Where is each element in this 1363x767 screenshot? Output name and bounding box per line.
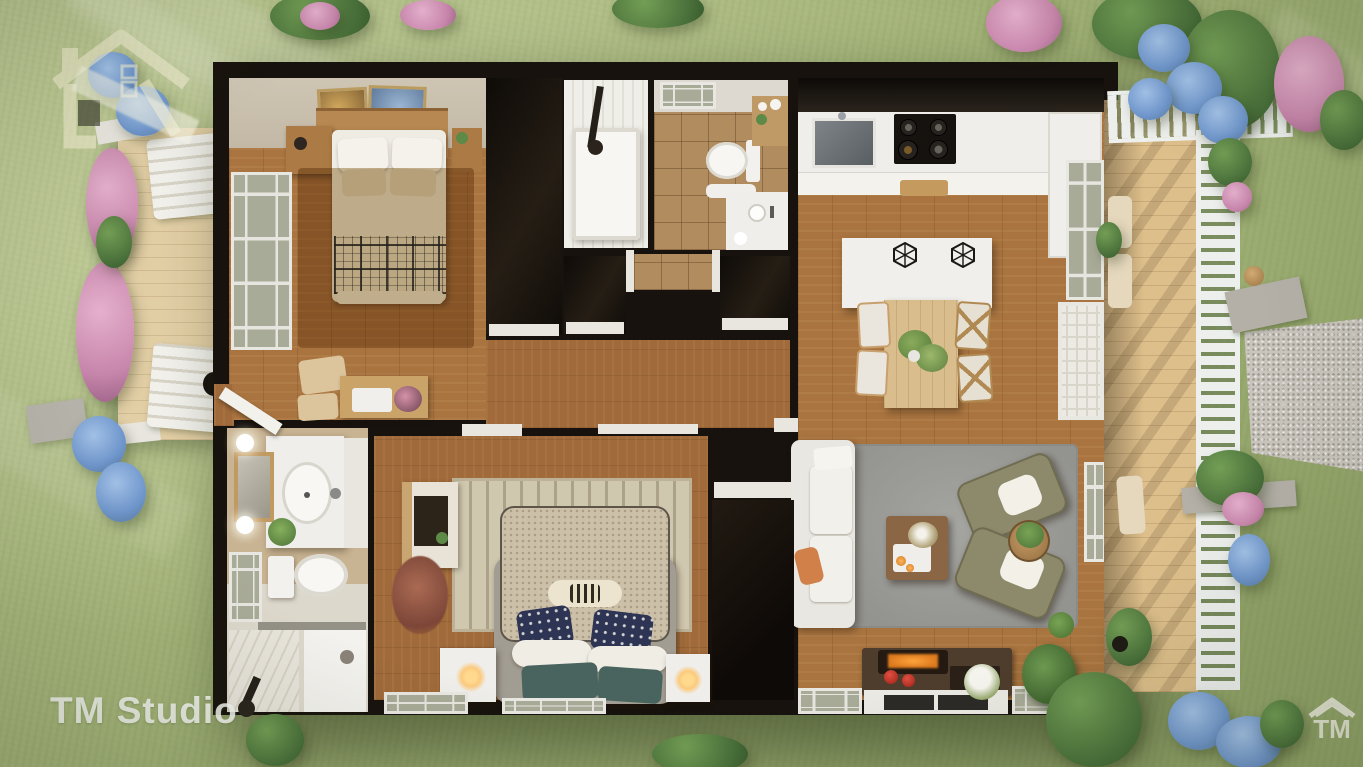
corner-plant	[1048, 612, 1074, 638]
wardrobe-closet	[486, 78, 562, 334]
vestibule-floor	[634, 254, 712, 290]
bedroom-rug	[298, 168, 474, 348]
wardrobe-trim	[714, 482, 792, 498]
bed-pillow	[337, 137, 389, 173]
dried-flowers	[392, 556, 448, 634]
tm-house-badge-icon: TM	[1306, 694, 1358, 752]
jar	[770, 99, 781, 110]
dining-chair	[857, 301, 891, 349]
garden-bush	[246, 714, 304, 766]
nightstand	[286, 126, 332, 174]
white-bouquet	[964, 664, 1000, 700]
bolster-stripes	[570, 584, 600, 603]
table-flowers	[908, 522, 938, 548]
sofa-cushion	[810, 466, 852, 534]
candle	[896, 556, 906, 566]
blue-hydrangea	[1228, 534, 1270, 586]
entry-tray	[352, 388, 392, 412]
bathtub	[572, 128, 640, 240]
closet-trim	[489, 324, 559, 336]
bedside-lamp	[456, 662, 486, 692]
bedside-lamp	[674, 666, 702, 694]
candle	[906, 564, 914, 572]
burner	[930, 119, 947, 136]
kitchen-sink	[812, 118, 876, 168]
garden-bush	[1208, 138, 1252, 186]
deck-railing-right	[1196, 130, 1240, 690]
garden-bush	[612, 0, 704, 28]
door-frame	[598, 424, 698, 434]
ensuite-cabinet	[344, 438, 368, 548]
blue-hydrangea	[1198, 96, 1248, 144]
sink-drain	[304, 492, 310, 498]
vanity-light	[236, 434, 254, 452]
side-table-plant	[1016, 522, 1044, 548]
gravel-path	[1238, 310, 1363, 480]
pendant-lamp-icon	[892, 242, 918, 268]
living-window	[1084, 462, 1106, 562]
toilet-tank	[746, 140, 760, 182]
deck-house-shadow	[1104, 100, 1144, 692]
burner	[929, 140, 948, 159]
vase	[908, 350, 920, 362]
garden-bush	[1260, 700, 1304, 748]
door-frame	[774, 418, 800, 432]
pendant-lamp-icon	[950, 242, 976, 268]
decor-red	[902, 674, 915, 687]
vanity-faucet	[770, 206, 774, 218]
ensuite-plant	[268, 518, 296, 546]
throw-blanket	[813, 445, 853, 470]
flower-vase	[394, 386, 422, 412]
table-lamp	[294, 137, 307, 150]
garden-bush	[1046, 672, 1142, 767]
sink-faucet	[330, 488, 341, 499]
burner	[898, 140, 918, 160]
shower-drain	[340, 650, 354, 664]
plant-small	[456, 132, 468, 144]
hallway-floor	[486, 340, 790, 428]
pink-flowers	[400, 0, 456, 30]
pink-flowers	[1222, 182, 1252, 212]
bed-pillow	[391, 137, 442, 172]
badge-letters: TM	[1313, 714, 1351, 744]
dining-chair-crossback	[954, 301, 991, 351]
fireplace-flame	[888, 654, 938, 668]
teal-pillow	[597, 666, 663, 704]
ensuite-window	[229, 552, 262, 622]
decor-red	[884, 670, 898, 684]
pink-flowers	[76, 262, 134, 402]
jar	[758, 102, 767, 111]
shower-glass	[258, 622, 366, 630]
door-frame	[626, 250, 634, 292]
deck-cushion	[1116, 475, 1146, 535]
master-wardrobe	[712, 500, 794, 700]
bath-window	[660, 82, 716, 109]
entry-bench	[297, 393, 339, 422]
pink-flowers	[300, 2, 340, 30]
upper-cabinets	[798, 78, 1104, 112]
sink-faucet	[838, 112, 846, 120]
dining-chair-crossback	[956, 353, 993, 403]
garden-bush	[1320, 90, 1363, 150]
master-window	[384, 692, 468, 714]
blue-hydrangea	[1128, 78, 1172, 120]
shower-head	[588, 140, 603, 155]
deck-pot	[1112, 636, 1128, 652]
toilet-tank	[268, 556, 294, 598]
dining-chair	[855, 349, 889, 397]
shower-head	[238, 700, 255, 717]
french-window	[231, 172, 292, 350]
shower-floor	[304, 630, 366, 712]
door-frame	[462, 424, 522, 436]
vanity-sink	[748, 204, 766, 222]
plant-small	[756, 114, 767, 125]
toilet-bowl	[706, 142, 748, 179]
studio-watermark-text: TM Studio	[50, 690, 238, 732]
floorplan-render: TM Studio TM	[0, 0, 1363, 767]
shelf-plant	[436, 532, 448, 544]
ensuite-mirror	[234, 452, 274, 522]
vanity-light	[236, 516, 254, 534]
teal-pillow	[521, 662, 599, 702]
toilet-bowl	[294, 554, 348, 596]
blue-hydrangea	[96, 462, 146, 522]
bench-tray	[884, 695, 934, 710]
deck-plant	[1106, 608, 1152, 666]
garden-bush	[96, 216, 132, 268]
closet-trim	[566, 322, 624, 334]
bottom-window	[798, 688, 862, 714]
master-window	[502, 698, 606, 714]
deck-plant	[1096, 222, 1122, 258]
shower-wall	[229, 630, 299, 712]
towel-roll	[734, 232, 747, 245]
closet-trim	[722, 318, 788, 330]
garden-ornament	[1244, 266, 1264, 286]
cutting-board	[900, 180, 948, 196]
door-frame	[712, 250, 720, 292]
garden-bush	[652, 734, 748, 767]
pink-flowers	[1222, 492, 1264, 526]
pink-flowers	[986, 0, 1062, 52]
deck-cushion	[1108, 254, 1132, 308]
centerpiece-plant	[916, 344, 948, 372]
patio-door	[1058, 302, 1104, 420]
burner	[900, 119, 917, 136]
